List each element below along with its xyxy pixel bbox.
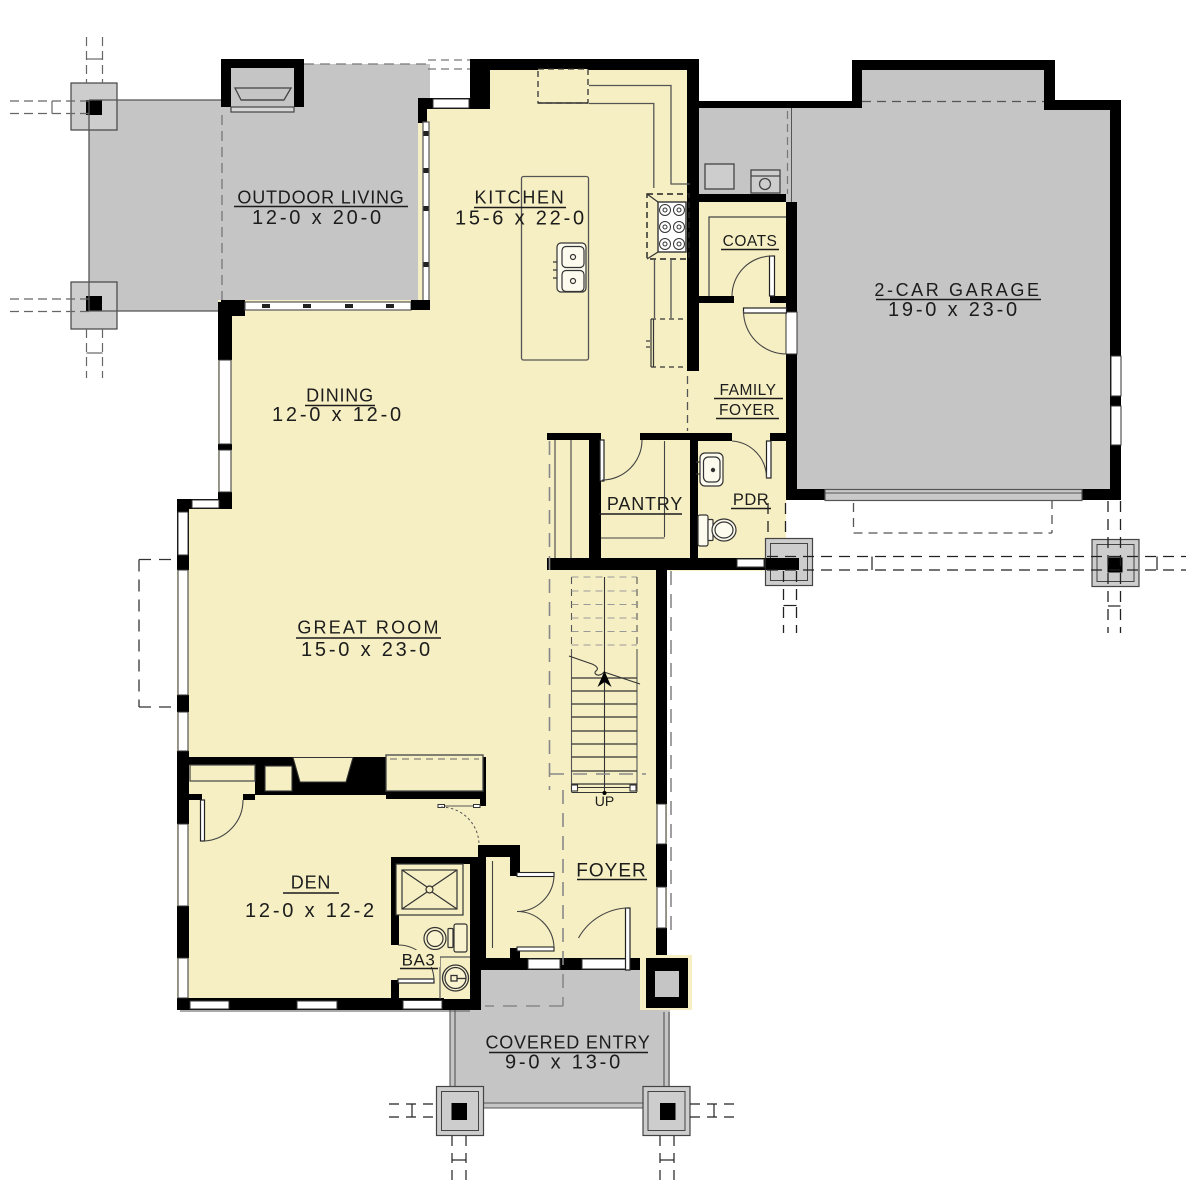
- svg-text:DEN: DEN: [291, 873, 331, 893]
- svg-text:FOYER: FOYER: [576, 861, 646, 882]
- svg-text:FAMILY: FAMILY: [720, 382, 777, 399]
- svg-text:15-6 x 22-0: 15-6 x 22-0: [455, 208, 587, 230]
- svg-text:COVERED ENTRY: COVERED ENTRY: [485, 1033, 650, 1053]
- svg-text:PANTRY: PANTRY: [607, 494, 683, 514]
- svg-text:2-CAR GARAGE: 2-CAR GARAGE: [874, 280, 1041, 300]
- svg-text:12-0 x 12-2: 12-0 x 12-2: [245, 900, 377, 922]
- svg-text:19-0 x 23-0: 19-0 x 23-0: [888, 299, 1020, 321]
- svg-text:FOYER: FOYER: [719, 402, 775, 419]
- svg-text:PDR: PDR: [733, 491, 769, 509]
- svg-text:OUTDOOR LIVING: OUTDOOR LIVING: [237, 188, 404, 208]
- svg-text:UP: UP: [595, 793, 614, 809]
- svg-text:12-0 x 20-0: 12-0 x 20-0: [252, 207, 384, 229]
- svg-text:GREAT ROOM: GREAT ROOM: [297, 618, 440, 638]
- svg-text:9-0 x 13-0: 9-0 x 13-0: [505, 1052, 623, 1074]
- svg-text:12-0 x 12-0: 12-0 x 12-0: [272, 404, 404, 426]
- svg-text:KITCHEN: KITCHEN: [475, 188, 566, 208]
- svg-text:BA3: BA3: [402, 951, 436, 970]
- svg-text:DINING: DINING: [306, 386, 374, 406]
- svg-text:15-0 x 23-0: 15-0 x 23-0: [301, 639, 433, 661]
- svg-text:COATS: COATS: [723, 233, 778, 250]
